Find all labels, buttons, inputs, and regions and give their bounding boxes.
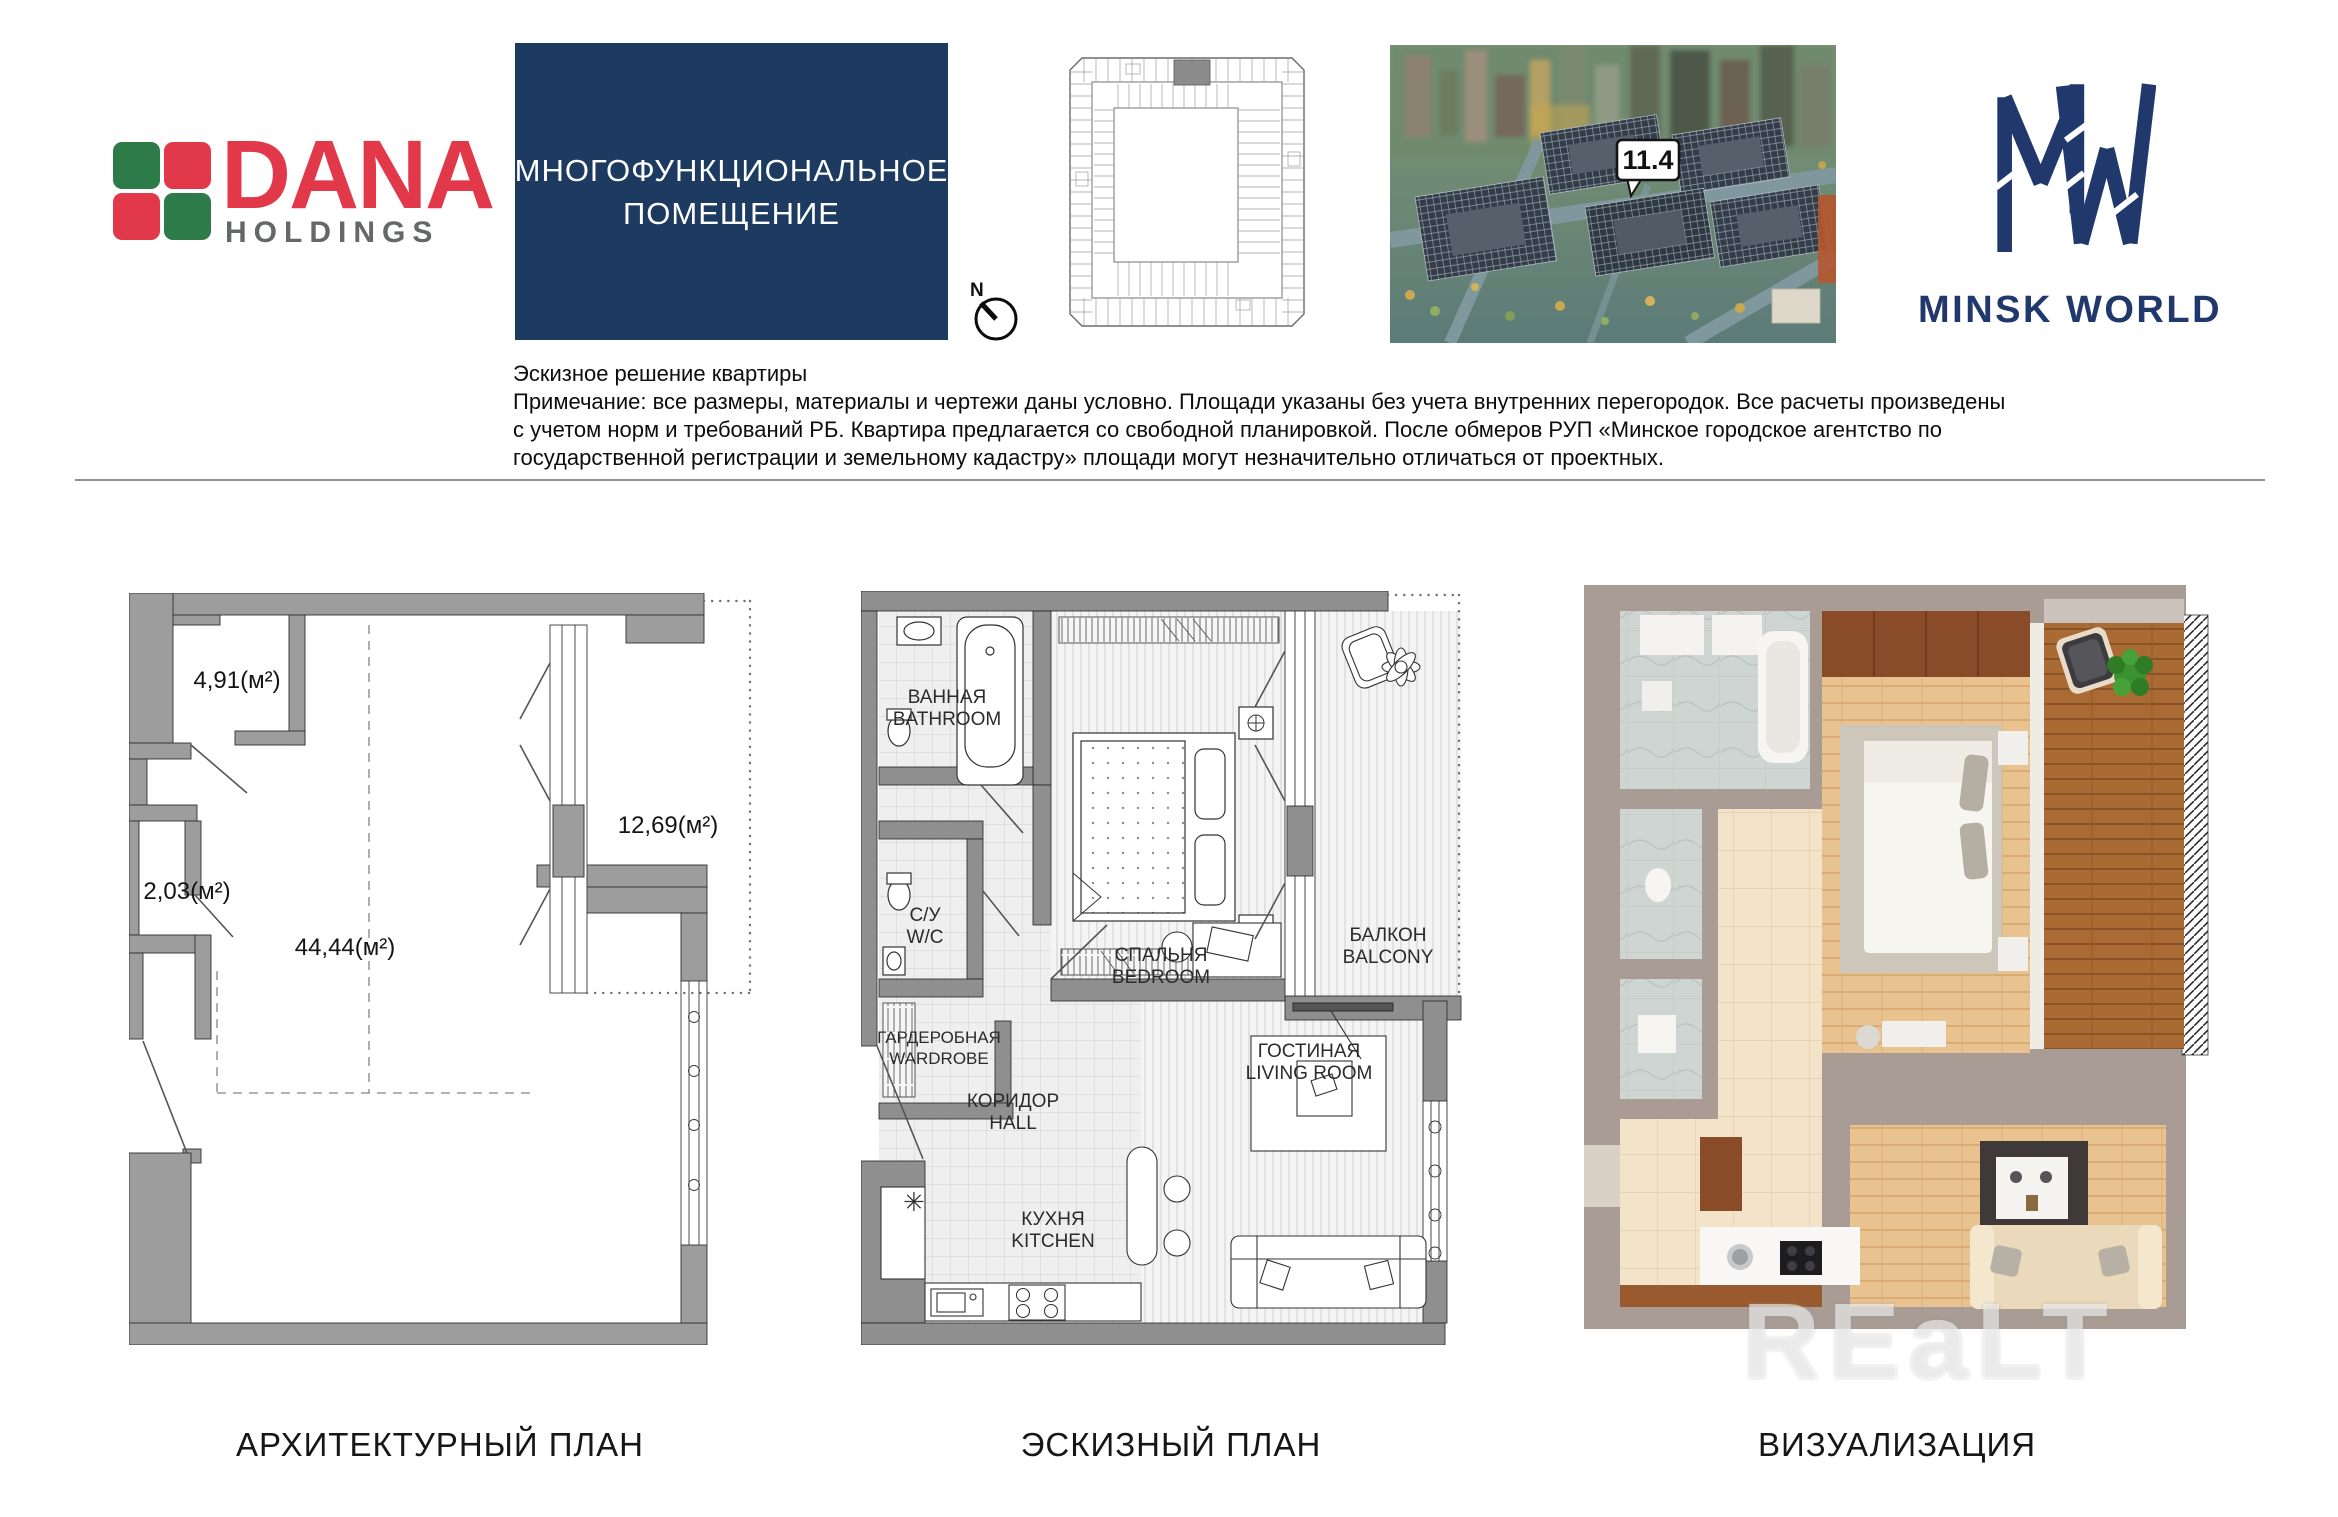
aerial-unit-label: 11.4 [1622, 145, 1673, 175]
label-kitchen-ru: КУХНЯ [1021, 1209, 1084, 1230]
label-bathroom-en: BATHROOM [893, 709, 1001, 730]
premises-title-line2: ПОМЕЩЕНИЕ [623, 192, 840, 235]
architectural-plan: 4,91(м²) 2,03(м²) 44,44(м²) 12,69(м²) [129, 593, 753, 1345]
dana-logo-subword: HOLDINGS [225, 216, 439, 250]
area-label-balcony: 12,69(м²) [618, 812, 719, 839]
area-label-room2: 2,03(м²) [143, 878, 230, 905]
minsk-world-logo: MINSK WORLD [1902, 72, 2238, 332]
label-balcony-en: BALCONY [1343, 947, 1434, 968]
label-hall-en: HALL [989, 1113, 1037, 1134]
label-kitchen-en: KITCHEN [1011, 1231, 1094, 1252]
realt-watermark: REaLT [1742, 1278, 2116, 1403]
label-living-en: LIVING ROOM [1246, 1063, 1373, 1084]
label-bathroom-ru: ВАННАЯ [908, 687, 987, 708]
area-label-room1: 4,91(м²) [193, 667, 280, 694]
minsk-world-monogram-icon [1984, 72, 2156, 260]
label-bedroom-ru: СПАЛЬНЯ [1115, 945, 1208, 966]
notes-title: Эскизное решение квартиры [513, 360, 2005, 388]
compass-north-label: N [970, 280, 984, 301]
building-key-plan [1066, 52, 1310, 334]
label-wc-en: W/C [907, 927, 944, 948]
label-balcony-ru: БАЛКОН [1350, 925, 1427, 946]
dana-logo-word: DANA [221, 126, 493, 223]
flyer-page: DANA HOLDINGS МНОГОФУНКЦИОНАЛЬНОЕ ПОМЕЩЕ… [0, 0, 2338, 1517]
notes-line3: государственной регистрации и земельному… [513, 444, 2005, 472]
sketch-plan: ✳ ВАННАЯ BATHROOM С/У [861, 591, 1462, 1345]
premises-title-line1: МНОГОФУНКЦИОНАЛЬНОЕ [515, 149, 949, 192]
label-wardrobe-en: WARDROBE [889, 1049, 989, 1068]
visualization-render [1582, 585, 2212, 1345]
caption-visualization: ВИЗУАЛИЗАЦИЯ [1758, 1426, 2036, 1464]
light-symbol: ✳ [903, 1187, 925, 1217]
notes-block: Эскизное решение квартиры Примечание: вс… [513, 360, 2005, 472]
label-wardrobe-ru: ГАРДЕРОБНАЯ [877, 1028, 1001, 1047]
label-living-ru: ГОСТИНАЯ [1258, 1041, 1360, 1062]
area-label-main: 44,44(м²) [295, 934, 396, 961]
label-hall-ru: КОРИДОР [967, 1091, 1059, 1112]
notes-line1: Примечание: все размеры, материалы и чер… [513, 388, 2005, 416]
minsk-world-name: MINSK WORLD [1902, 289, 2238, 332]
dana-holdings-logo: DANA HOLDINGS [113, 140, 513, 260]
compass-icon: N [958, 272, 1042, 348]
header-divider [75, 479, 2265, 481]
caption-architectural: АРХИТЕКТУРНЫЙ ПЛАН [236, 1426, 644, 1464]
premises-title-box: МНОГОФУНКЦИОНАЛЬНОЕ ПОМЕЩЕНИЕ [515, 43, 948, 340]
label-wc-ru: С/У [909, 905, 941, 926]
caption-sketch: ЭСКИЗНЫЙ ПЛАН [1021, 1426, 1322, 1464]
dana-logo-squares-icon [113, 142, 213, 242]
key-plan-highlighted-unit [1174, 60, 1210, 85]
notes-line2: с учетом норм и требований РБ. Квартира … [513, 416, 2005, 444]
aerial-render-image: 11.4 [1390, 45, 1836, 343]
label-bedroom-en: BEDROOM [1112, 967, 1210, 988]
